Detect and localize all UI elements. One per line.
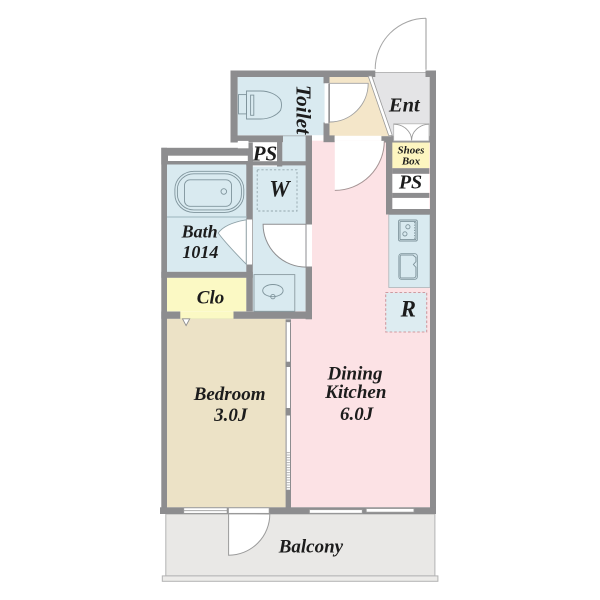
svg-text:Box: Box xyxy=(401,156,421,168)
svg-text:1014: 1014 xyxy=(182,242,218,262)
svg-text:Bath: Bath xyxy=(181,221,218,241)
svg-text:6.0J: 6.0J xyxy=(340,404,374,425)
svg-text:PS: PS xyxy=(398,172,422,194)
svg-text:Balcony: Balcony xyxy=(278,537,344,558)
svg-text:Kitchen: Kitchen xyxy=(324,382,386,403)
svg-text:Toilet: Toilet xyxy=(292,85,316,135)
svg-text:Bedroom: Bedroom xyxy=(193,384,266,405)
svg-text:Shoes: Shoes xyxy=(398,145,425,157)
svg-text:Clo: Clo xyxy=(197,288,224,309)
svg-text:R: R xyxy=(400,296,416,321)
svg-text:3.0J: 3.0J xyxy=(213,405,248,426)
svg-text:W: W xyxy=(269,177,291,202)
svg-text:Ent: Ent xyxy=(388,95,421,117)
svg-text:PS: PS xyxy=(252,142,278,166)
